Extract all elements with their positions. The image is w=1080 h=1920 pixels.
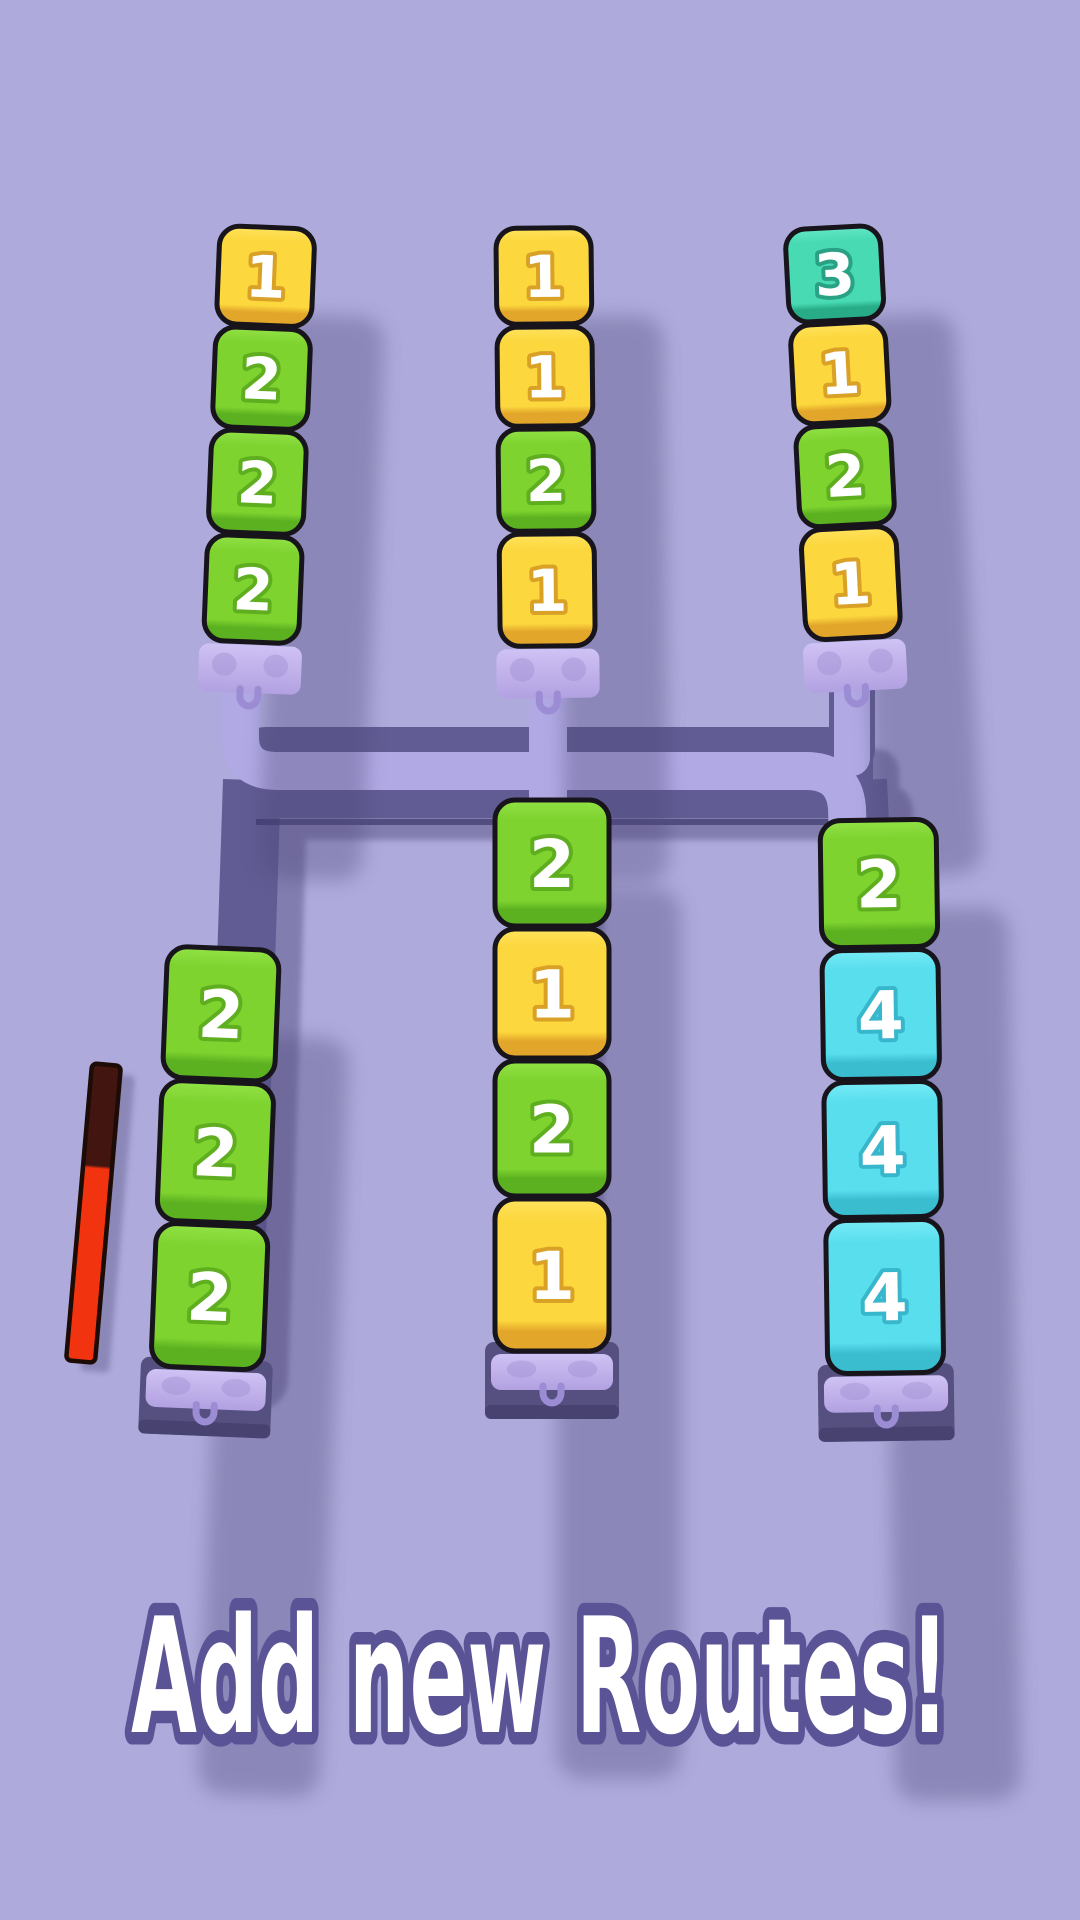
- route-terminal-lip: [485, 1405, 619, 1419]
- block-number: 1: [529, 956, 575, 1033]
- block-number: 2: [185, 1258, 234, 1337]
- block-number: 3: [813, 240, 857, 310]
- block-number: 4: [861, 1259, 908, 1337]
- block-number: 1: [529, 1238, 575, 1315]
- block-number: 2: [236, 448, 279, 518]
- block-number: 2: [196, 976, 245, 1055]
- column-top-middle: 1121: [492, 227, 600, 711]
- block-number: 2: [525, 447, 566, 515]
- banner-text: Add new Routes!: [131, 1583, 949, 1770]
- column-bottom-right: 2444: [810, 819, 955, 1442]
- column-bottom-middle: 2121: [485, 800, 619, 1419]
- block-number: 2: [529, 826, 575, 903]
- block-number: 1: [244, 242, 287, 312]
- dock-spot: [507, 1360, 537, 1377]
- dock-spot: [568, 1360, 598, 1377]
- block-number: 2: [529, 1091, 575, 1168]
- block-number: 2: [240, 344, 283, 414]
- puzzle-board: 12221121312122221212444 Add new Routes!: [0, 0, 1080, 1920]
- block-number: 2: [855, 846, 902, 924]
- block-number: 1: [829, 549, 873, 619]
- game-screen: 12221121312122221212444 Add new Routes!: [0, 0, 1080, 1920]
- block-number: 4: [857, 977, 904, 1055]
- block-number: 2: [191, 1114, 240, 1193]
- block-number: 4: [859, 1112, 906, 1190]
- block-number: 1: [527, 557, 568, 625]
- block-number: 2: [823, 441, 867, 511]
- block-number: 1: [818, 339, 862, 409]
- block-number: 2: [232, 555, 275, 625]
- block-number: 1: [524, 343, 565, 411]
- block-number: 1: [523, 243, 564, 311]
